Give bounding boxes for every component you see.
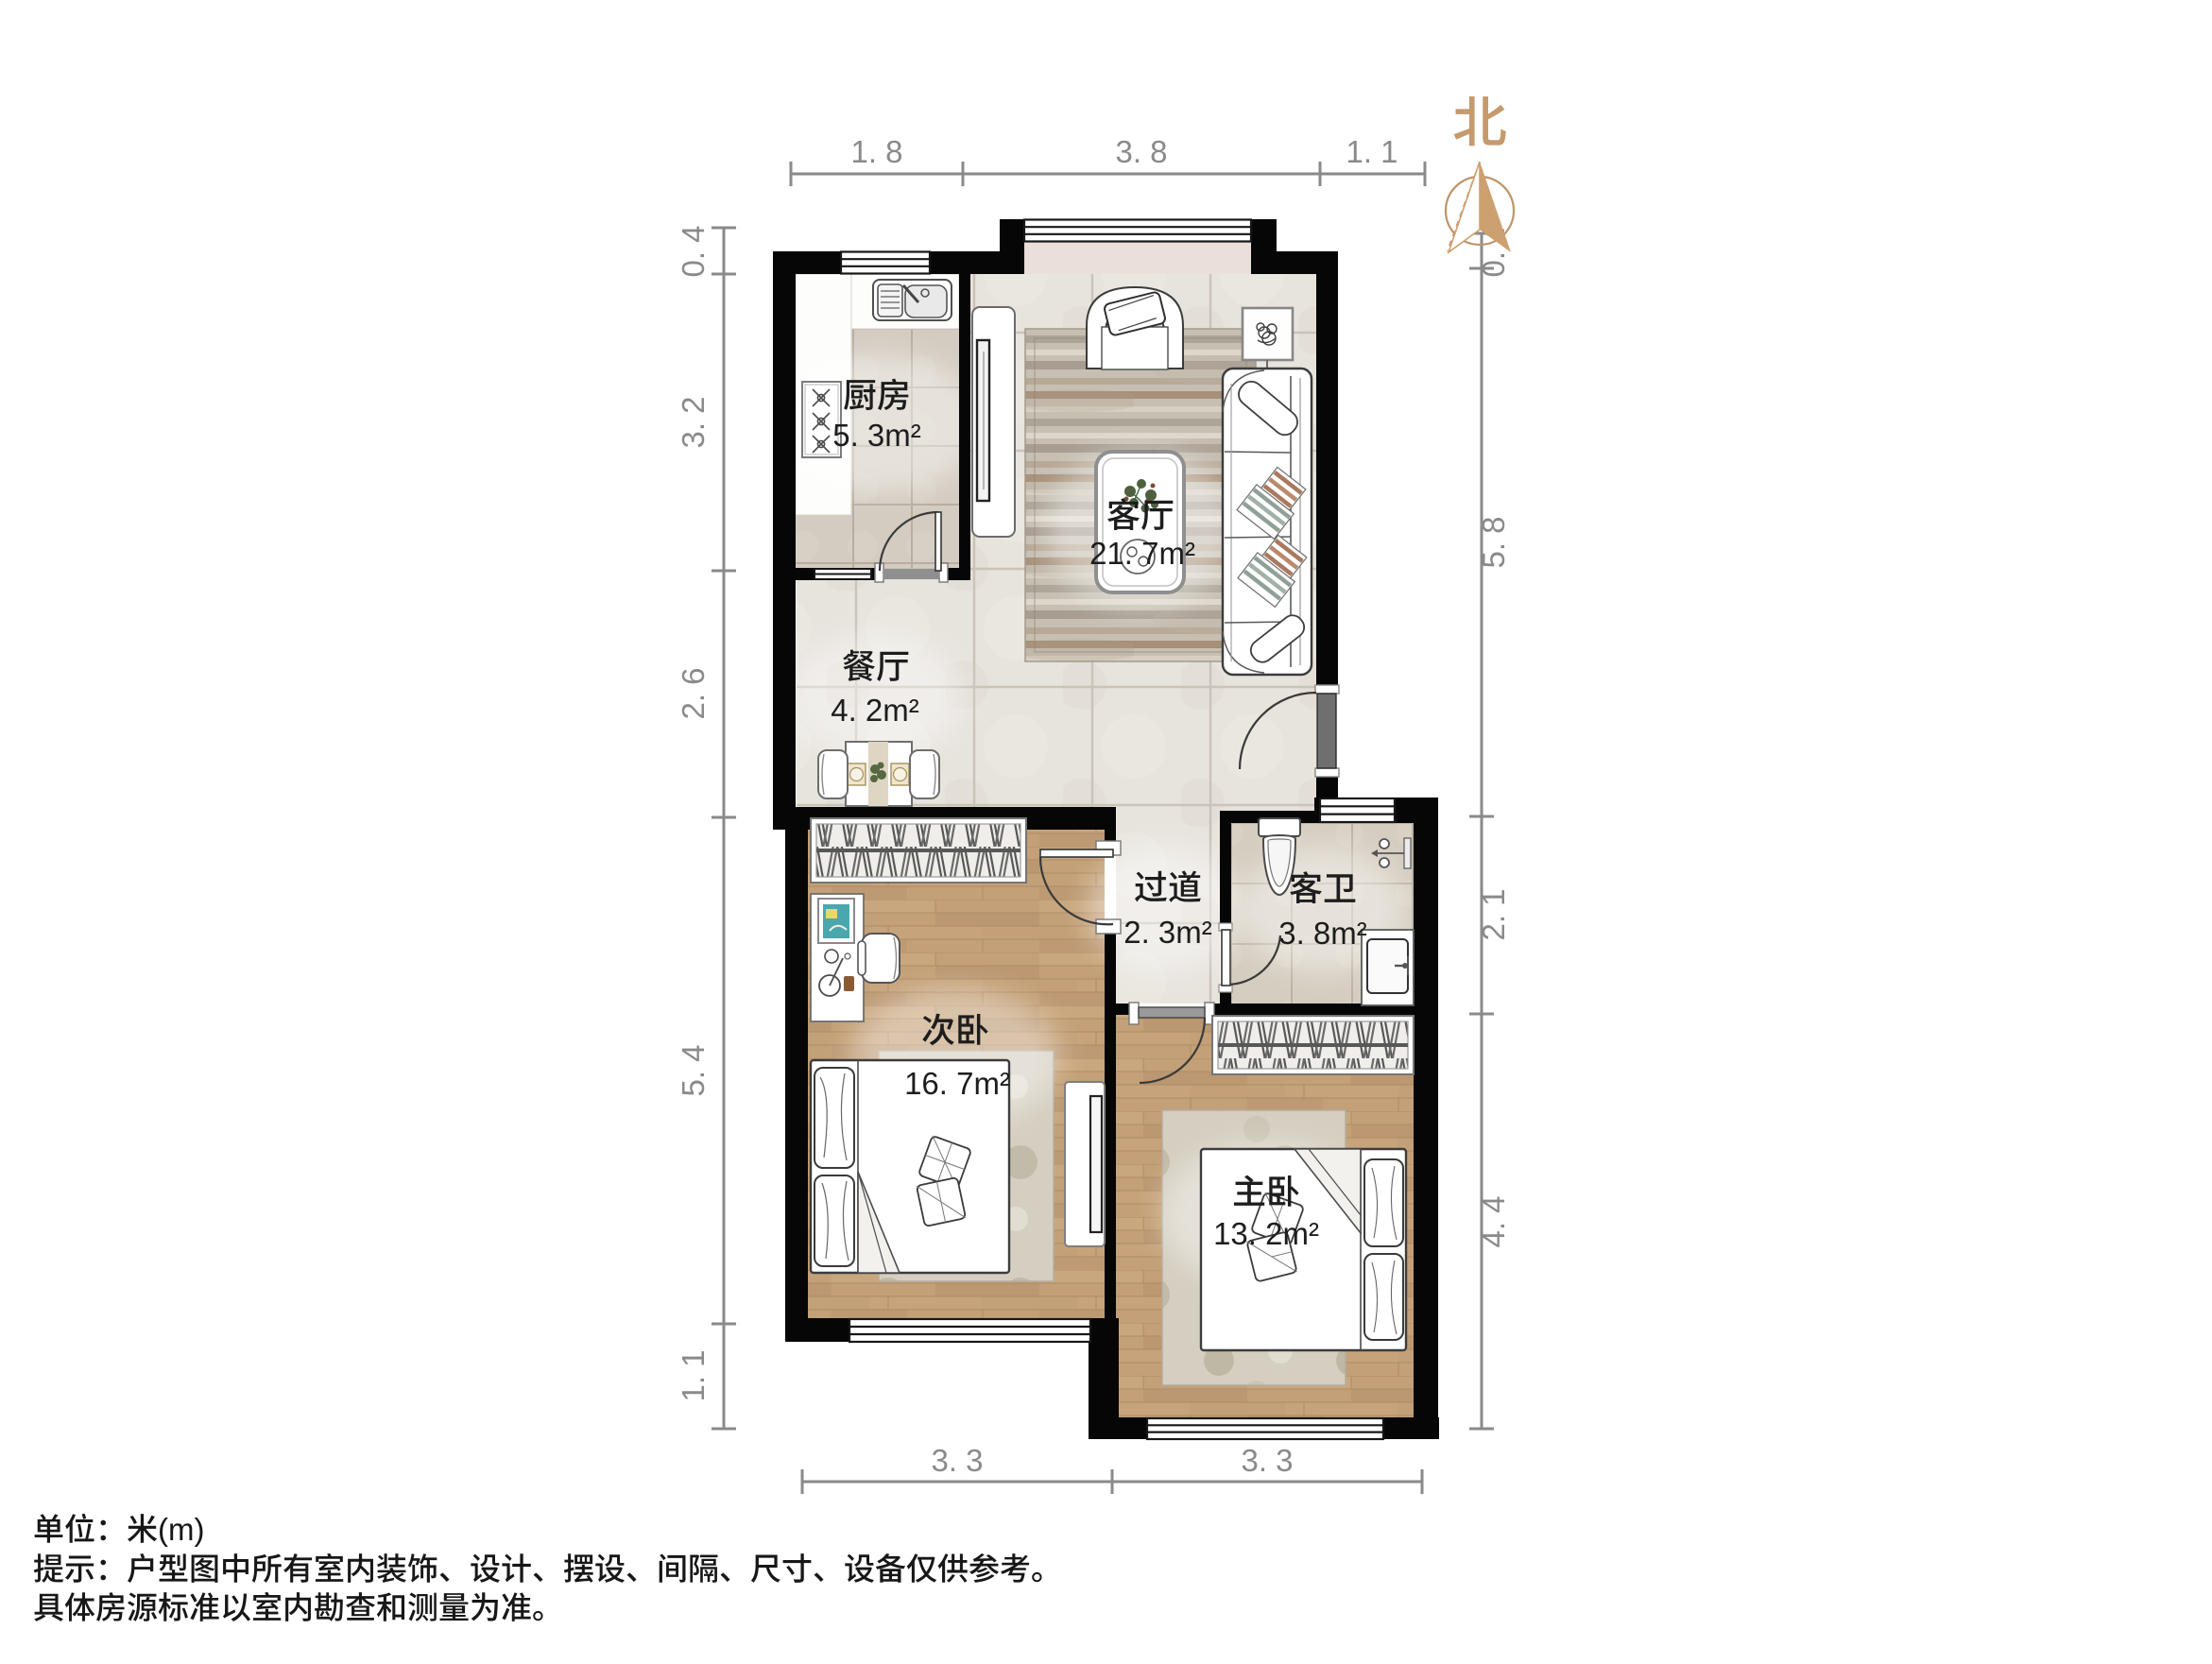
- svg-text:2. 6: 2. 6: [676, 667, 711, 719]
- svg-text:0. 4: 0. 4: [676, 225, 711, 277]
- svg-text:16. 7m²: 16. 7m²: [904, 1066, 1010, 1101]
- svg-text:主卧: 主卧: [1232, 1165, 1300, 1214]
- svg-text:2. 1: 2. 1: [1476, 888, 1511, 940]
- svg-text:餐厅: 餐厅: [842, 640, 910, 689]
- svg-text:1. 1: 1. 1: [1346, 134, 1398, 169]
- svg-text:3. 8: 3. 8: [1115, 134, 1167, 169]
- svg-text:2. 3m²: 2. 3m²: [1123, 915, 1212, 950]
- svg-text:5. 3m²: 5. 3m²: [832, 418, 921, 453]
- svg-text:具体房源标准以室内勘查和测量为准。: 具体房源标准以室内勘查和测量为准。: [33, 1583, 563, 1628]
- svg-text:次卧: 次卧: [921, 1004, 989, 1053]
- svg-text:4. 2m²: 4. 2m²: [831, 693, 919, 728]
- svg-text:5. 8: 5. 8: [1476, 516, 1511, 568]
- svg-text:13. 2m²: 13. 2m²: [1213, 1216, 1319, 1251]
- svg-text:客卫: 客卫: [1289, 862, 1357, 911]
- svg-text:3. 3: 3. 3: [1241, 1443, 1293, 1478]
- svg-text:单位：米(m): 单位：米(m): [33, 1504, 204, 1550]
- svg-text:北: 北: [1452, 78, 1507, 158]
- svg-text:1. 1: 1. 1: [676, 1349, 711, 1401]
- svg-text:3. 8m²: 3. 8m²: [1278, 916, 1367, 951]
- svg-text:3. 3: 3. 3: [931, 1443, 983, 1478]
- svg-text:客厅: 客厅: [1106, 489, 1175, 538]
- svg-text:1. 8: 1. 8: [850, 134, 902, 169]
- svg-text:3. 2: 3. 2: [676, 396, 711, 448]
- svg-text:过道: 过道: [1134, 861, 1202, 910]
- svg-text:厨房: 厨房: [843, 369, 911, 418]
- svg-text:5. 4: 5. 4: [676, 1044, 711, 1096]
- svg-text:21. 7m²: 21. 7m²: [1089, 536, 1195, 571]
- svg-text:4. 4: 4. 4: [1476, 1195, 1511, 1247]
